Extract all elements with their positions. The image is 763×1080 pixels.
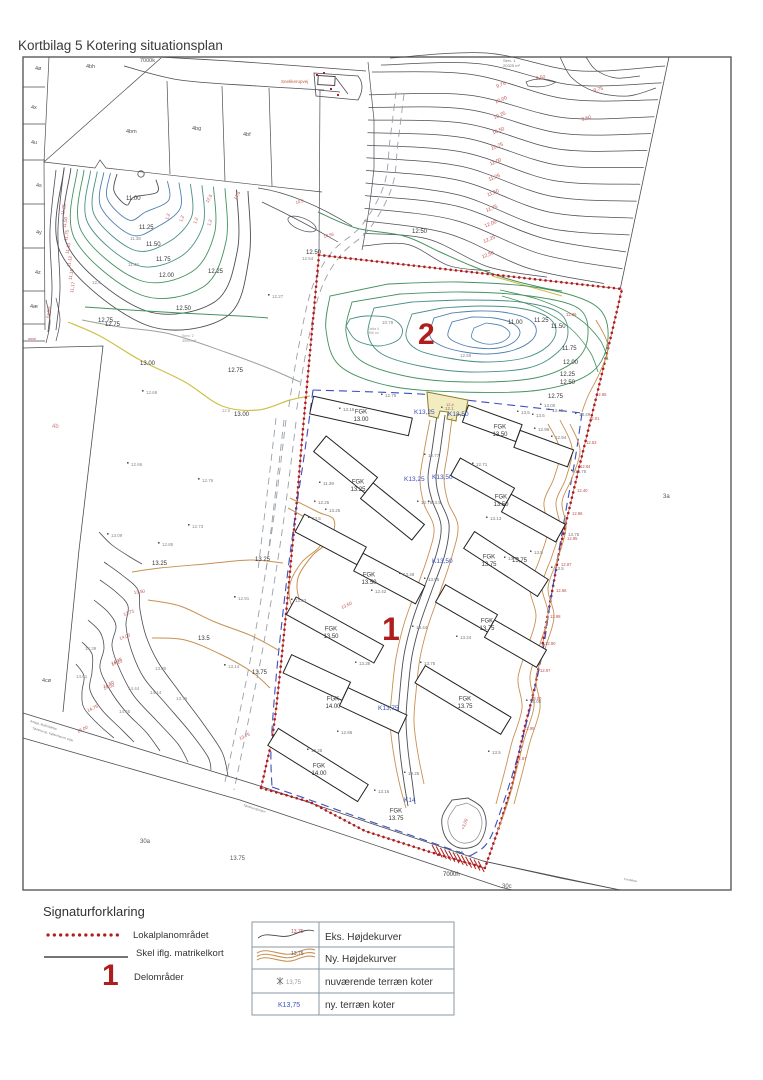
svg-text:13.50: 13.50: [361, 580, 377, 586]
svg-text:11.25: 11.25: [534, 318, 549, 324]
svg-text:13.44: 13.44: [416, 625, 428, 630]
svg-text:12.84: 12.84: [580, 464, 591, 469]
svg-text:12.85: 12.85: [162, 542, 174, 547]
svg-text:13.13: 13.13: [490, 516, 502, 521]
svg-text:13.00: 13.00: [140, 361, 156, 367]
svg-text:FGK: FGK: [390, 809, 402, 815]
svg-text:13.75: 13.75: [388, 816, 404, 822]
svg-text:Serv. 2: Serv. 2: [182, 334, 194, 338]
svg-text:13.00: 13.00: [531, 696, 542, 701]
svg-text:14.39: 14.39: [85, 646, 97, 651]
svg-text:Ny. Højdekurver: Ny. Højdekurver: [325, 954, 397, 965]
svg-text:2: 2: [418, 318, 435, 351]
svg-text:4æ: 4æ: [30, 304, 38, 310]
svg-text:13.09: 13.09: [111, 533, 123, 538]
svg-text:FGK: FGK: [355, 410, 367, 416]
svg-text:areal: areal: [28, 337, 36, 341]
svg-text:20325 m²: 20325 m²: [503, 63, 521, 68]
svg-text:7000k: 7000k: [140, 58, 155, 64]
svg-text:Signaturforklaring: Signaturforklaring: [43, 904, 145, 919]
svg-text:30c: 30c: [502, 884, 512, 890]
svg-text:12.71: 12.71: [476, 462, 488, 467]
svg-text:K13,50: K13,50: [432, 558, 453, 565]
svg-text:12.75: 12.75: [105, 322, 121, 328]
svg-text:13.16: 13.16: [378, 789, 390, 794]
svg-text:13.5: 13.5: [432, 500, 441, 505]
svg-text:12.98: 12.98: [550, 614, 561, 619]
svg-text:12.87: 12.87: [516, 756, 527, 761]
svg-text:11.46: 11.46: [128, 262, 139, 267]
svg-text:13.75: 13.75: [479, 626, 495, 632]
svg-text:12.5: 12.5: [92, 280, 101, 285]
svg-text:13.50: 13.50: [493, 502, 509, 508]
svg-text:13.25: 13.25: [152, 561, 168, 567]
svg-text:12.66: 12.66: [131, 462, 143, 467]
svg-text:13.50: 13.50: [492, 432, 508, 438]
svg-text:13 25: 13 25: [255, 557, 271, 563]
svg-text:12.69: 12.69: [146, 390, 158, 395]
svg-text:13.75: 13.75: [176, 696, 188, 701]
svg-text:4x: 4x: [31, 105, 37, 111]
svg-text:K13,25: K13,25: [414, 409, 435, 416]
svg-text:12.75: 12.75: [575, 469, 587, 474]
svg-text:13,75: 13,75: [286, 980, 302, 986]
svg-text:13.5: 13.5: [198, 636, 210, 642]
svg-text:13.85: 13.85: [155, 666, 167, 671]
svg-text:11.50: 11.50: [146, 242, 161, 248]
svg-text:1: 1: [382, 611, 400, 647]
svg-text:12.25: 12.25: [208, 269, 224, 275]
svg-text:4z: 4z: [35, 270, 41, 276]
svg-text:13.75: 13.75: [457, 704, 473, 710]
svg-text:Skel iflg. matrikelkort: Skel iflg. matrikelkort: [136, 948, 224, 959]
svg-text:K13,75: K13,75: [378, 705, 399, 712]
svg-text:11.39: 11.39: [323, 481, 334, 486]
svg-text:10.78: 10.78: [382, 320, 394, 325]
svg-text:FGK: FGK: [363, 573, 375, 579]
svg-text:FGK: FGK: [325, 627, 337, 633]
svg-text:12.97: 12.97: [540, 668, 551, 673]
svg-text:13.5: 13.5: [312, 516, 321, 521]
svg-text:FGK: FGK: [495, 495, 507, 501]
svg-text:14.00: 14.00: [311, 771, 327, 777]
svg-text:13,75: 13,75: [291, 951, 304, 957]
svg-text:12.85: 12.85: [596, 392, 607, 397]
svg-text:12.95: 12.95: [538, 427, 550, 432]
svg-text:12.86: 12.86: [566, 312, 577, 317]
svg-text:12.75: 12.75: [548, 394, 564, 400]
svg-text:13.25: 13.25: [350, 487, 366, 493]
svg-text:1: 1: [102, 959, 119, 992]
svg-text:13.55: 13.55: [428, 577, 440, 582]
svg-text:12.90: 12.90: [545, 641, 556, 646]
svg-text:12.27: 12.27: [272, 294, 284, 299]
svg-text:13.25: 13.25: [408, 771, 420, 776]
svg-text:13.00: 13.00: [353, 417, 369, 423]
svg-text:13.75: 13.75: [252, 670, 268, 676]
svg-text:ny. terræn koter: ny. terræn koter: [325, 1000, 396, 1011]
svg-text:13.5: 13.5: [534, 550, 543, 555]
svg-text:4bg: 4bg: [192, 126, 201, 132]
svg-text:K13,75: K13,75: [278, 1002, 300, 1009]
svg-text:13.00: 13.00: [544, 403, 556, 408]
svg-text:12.77: 12.77: [428, 453, 440, 458]
svg-text:13.75: 13.75: [424, 661, 436, 666]
svg-text:12.54: 12.54: [302, 256, 314, 261]
svg-text:K13,50: K13,50: [432, 474, 453, 481]
svg-text:13.24: 13.24: [460, 635, 472, 640]
svg-text:4b: 4b: [52, 424, 59, 430]
svg-text:Kortbilag 5 Kotering situation: Kortbilag 5 Kotering situationsplan: [18, 38, 223, 53]
svg-text:14.44: 14.44: [128, 686, 140, 691]
svg-text:4bm: 4bm: [126, 129, 137, 135]
svg-text:12.50: 12.50: [176, 306, 192, 312]
svg-text:11.38: 11.38: [130, 236, 141, 241]
svg-text:12.66: 12.66: [556, 588, 567, 593]
svg-text:13.49: 13.49: [403, 572, 415, 577]
svg-text:13,15: 13,15: [452, 850, 464, 855]
svg-text:13.00: 13.00: [234, 412, 250, 418]
svg-text:K13,25: K13,25: [404, 476, 425, 483]
svg-text:12.1: 12.1: [445, 406, 454, 411]
svg-text:12:50: 12:50: [412, 229, 428, 235]
svg-text:12.86: 12.86: [572, 511, 583, 516]
svg-text:12.86: 12.86: [341, 730, 353, 735]
svg-text:FGK: FGK: [483, 555, 495, 561]
svg-text:11.25: 11.25: [139, 225, 154, 231]
svg-text:13.15: 13.15: [343, 407, 355, 412]
svg-text:4cø: 4cø: [42, 678, 52, 684]
svg-text:12.01: 12.01: [589, 416, 600, 421]
svg-text:Delområder: Delområder: [134, 972, 184, 983]
svg-text:12.25: 12.25: [318, 500, 330, 505]
svg-text:4y: 4y: [36, 230, 42, 236]
svg-text:11.00: 11.00: [508, 320, 523, 326]
svg-text:13.75: 13.75: [230, 856, 246, 862]
svg-text:11.00: 11.00: [126, 196, 141, 202]
svg-text:12.5: 12.5: [222, 408, 231, 413]
svg-text:12.63: 12.63: [295, 598, 307, 603]
svg-text:12.97: 12.97: [561, 562, 572, 567]
svg-text:FGK: FGK: [313, 764, 325, 770]
svg-text:Eks. Højdekurver: Eks. Højdekurver: [325, 932, 402, 943]
svg-text:12.91: 12.91: [238, 596, 250, 601]
svg-text:4u: 4u: [31, 140, 37, 146]
svg-text:K13,50: K13,50: [448, 411, 469, 418]
svg-text:14.61: 14.61: [76, 674, 88, 679]
svg-text:3595 m²: 3595 m²: [182, 339, 197, 343]
svg-text:4bf: 4bf: [243, 132, 251, 138]
svg-text:13,75: 13,75: [291, 929, 304, 935]
svg-text:K14: K14: [404, 797, 416, 804]
svg-text:13.5: 13.5: [492, 750, 501, 755]
svg-text:13.5: 13.5: [536, 413, 545, 418]
svg-text:12.00: 12.00: [159, 273, 175, 279]
svg-text:856 m²: 856 m²: [368, 331, 380, 335]
svg-text:3a: 3a: [663, 494, 670, 500]
svg-text:4bh: 4bh: [86, 64, 95, 70]
svg-text:12.53: 12.53: [586, 440, 597, 445]
svg-text:11.75: 11.75: [156, 257, 171, 263]
svg-text:12.73: 12.73: [192, 524, 204, 529]
svg-text:4s: 4s: [36, 183, 42, 189]
svg-text:12.25: 12.25: [560, 372, 576, 378]
svg-text:13.49: 13.49: [552, 408, 564, 413]
svg-text:12.75: 12.75: [228, 368, 244, 374]
svg-text:13.25: 13.25: [311, 748, 323, 753]
svg-text:12.40: 12.40: [577, 488, 588, 493]
svg-text:12.76: 12.76: [421, 500, 433, 505]
svg-text:Snekkerupvej: Snekkerupvej: [281, 79, 308, 84]
svg-text:FGK: FGK: [481, 619, 493, 625]
svg-text:Lokalplanområdet: Lokalplanområdet: [133, 930, 209, 941]
svg-text:12.55: 12.55: [460, 353, 472, 358]
svg-text:FGK: FGK: [327, 697, 339, 703]
svg-text:4ø: 4ø: [35, 66, 42, 72]
svg-text:13.75: 13.75: [508, 556, 520, 561]
svg-text:13.36: 13.36: [359, 661, 371, 666]
svg-text:13.50: 13.50: [323, 634, 339, 640]
svg-text:12.76: 12.76: [202, 478, 214, 483]
svg-text:12.00: 12.00: [563, 360, 579, 366]
svg-text:12.50: 12.50: [560, 380, 576, 386]
svg-text:14.00: 14.00: [325, 704, 341, 710]
svg-text:11.50: 11.50: [551, 324, 566, 330]
svg-text:13,5: 13,5: [521, 410, 530, 415]
svg-text:12.95: 12.95: [567, 536, 578, 541]
svg-text:13.25: 13.25: [329, 508, 341, 513]
svg-text:12.94: 12.94: [555, 435, 567, 440]
svg-text:13.14: 13.14: [228, 664, 240, 669]
svg-text:nuværende terræn koter: nuværende terræn koter: [325, 977, 434, 988]
svg-text:FGK: FGK: [494, 425, 506, 431]
svg-text:12.95: 12.95: [524, 726, 535, 731]
svg-text:7000h: 7000h: [443, 872, 460, 878]
svg-text:FGK: FGK: [352, 480, 364, 486]
svg-text:13.75: 13.75: [481, 562, 497, 568]
svg-text:12.75: 12.75: [385, 393, 397, 398]
svg-text:14.65: 14.65: [119, 709, 131, 714]
svg-text:12.42: 12.42: [375, 589, 387, 594]
svg-text:FGK: FGK: [459, 697, 471, 703]
svg-text:14.14: 14.14: [150, 690, 162, 695]
svg-text:30a: 30a: [140, 839, 151, 845]
svg-text:11.75: 11.75: [562, 346, 577, 352]
